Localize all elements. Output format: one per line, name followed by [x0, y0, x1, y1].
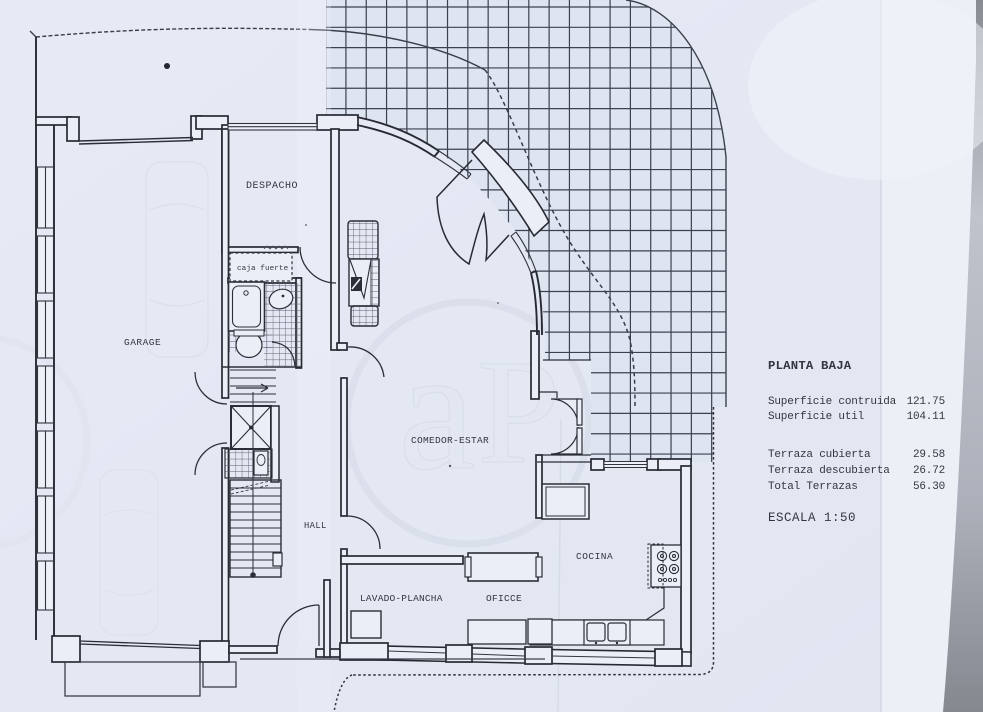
- svg-text:Terraza cubierta: Terraza cubierta: [768, 449, 871, 461]
- svg-text:GARAGE: GARAGE: [124, 337, 161, 348]
- svg-text:Terraza descubierta: Terraza descubierta: [768, 465, 890, 477]
- svg-text:Superficie util: Superficie util: [768, 411, 864, 423]
- svg-text:Superficie contruida: Superficie contruida: [768, 396, 897, 408]
- svg-text:COCINA: COCINA: [576, 551, 613, 562]
- svg-text:26.72: 26.72: [913, 465, 945, 477]
- svg-text:caja fuerte: caja fuerte: [237, 265, 289, 273]
- svg-text:29.58: 29.58: [913, 449, 945, 461]
- svg-text:ESCALA 1:50: ESCALA 1:50: [768, 511, 856, 525]
- svg-text:OFICCE: OFICCE: [486, 593, 522, 604]
- svg-text:HALL: HALL: [304, 521, 327, 531]
- svg-text:COMEDOR-ESTAR: COMEDOR-ESTAR: [411, 435, 489, 446]
- svg-text:Total Terrazas: Total Terrazas: [768, 481, 858, 493]
- svg-text:LAVADO-PLANCHA: LAVADO-PLANCHA: [360, 593, 443, 604]
- svg-text:56.30: 56.30: [913, 481, 945, 493]
- svg-text:DESPACHO: DESPACHO: [246, 181, 298, 192]
- svg-text:104.11: 104.11: [907, 411, 946, 423]
- svg-text:PLANTA BAJA: PLANTA BAJA: [768, 359, 852, 373]
- svg-text:121.75: 121.75: [907, 396, 945, 408]
- svg-text:a: a: [398, 312, 476, 506]
